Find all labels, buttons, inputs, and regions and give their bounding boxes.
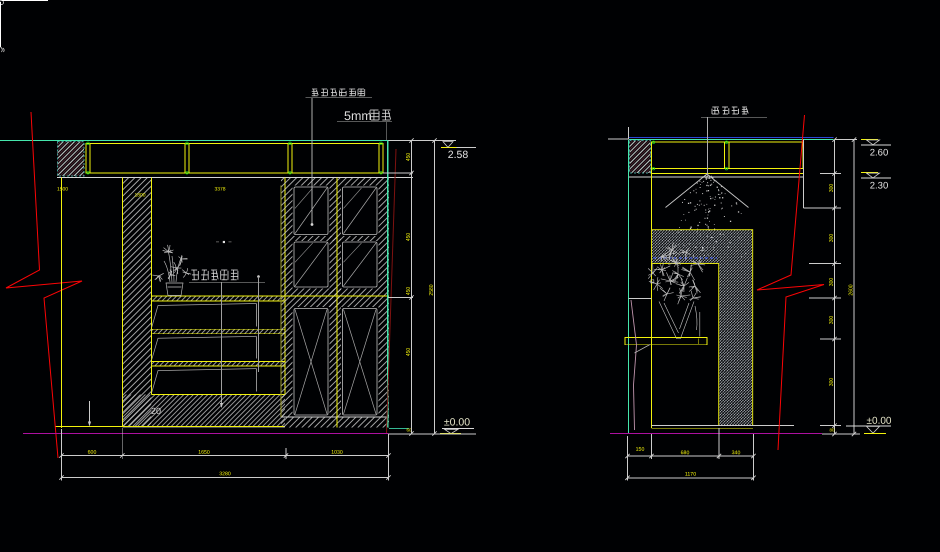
svg-text:680: 680: [681, 450, 690, 456]
svg-text:1170: 1170: [685, 472, 696, 478]
svg-text:1030: 1030: [331, 450, 343, 456]
svg-text:5mm: 5mm: [344, 109, 372, 123]
svg-text:1800: 1800: [134, 192, 145, 198]
svg-text:300: 300: [829, 378, 835, 387]
svg-text:3280: 3280: [219, 471, 231, 477]
svg-text:2.30: 2.30: [870, 180, 889, 191]
svg-text:1500: 1500: [57, 186, 68, 192]
svg-text:600: 600: [88, 450, 97, 456]
svg-text:2600: 2600: [849, 284, 855, 295]
svg-text:3378: 3378: [214, 186, 225, 192]
svg-text:450: 450: [406, 233, 412, 242]
svg-text:20: 20: [151, 406, 161, 416]
svg-text:300: 300: [829, 278, 835, 287]
svg-text:150: 150: [636, 447, 645, 453]
svg-text:340: 340: [732, 450, 741, 456]
svg-text:300: 300: [829, 316, 835, 325]
svg-text:1650: 1650: [198, 450, 210, 456]
svg-text:450: 450: [406, 348, 412, 357]
svg-text:450: 450: [406, 153, 412, 162]
svg-text:2.60: 2.60: [870, 147, 889, 158]
svg-text:2.58: 2.58: [448, 149, 469, 161]
svg-text:300: 300: [829, 234, 835, 243]
svg-text:±0.00: ±0.00: [867, 416, 892, 427]
svg-text:2580: 2580: [429, 284, 435, 295]
svg-text:80: 80: [829, 427, 835, 432]
svg-text:300: 300: [829, 184, 835, 193]
svg-text:±0.00: ±0.00: [444, 416, 470, 428]
svg-text:450: 450: [406, 287, 412, 296]
